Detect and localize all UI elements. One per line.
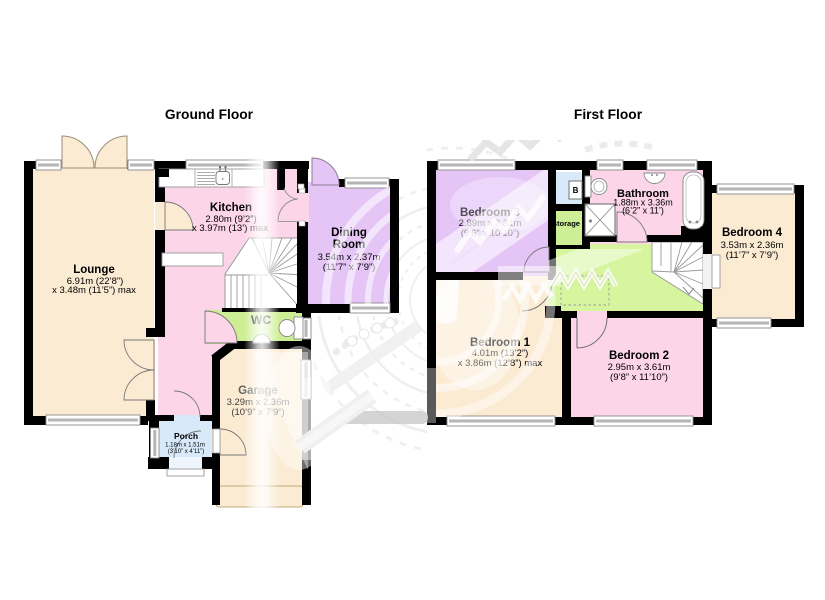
svg-text:Porch: Porch	[174, 431, 198, 441]
svg-text:(9’8” x 11’10”): (9’8” x 11’10”)	[610, 372, 668, 383]
svg-text:Storage: Storage	[552, 219, 580, 228]
svg-text:B: B	[573, 186, 579, 195]
svg-text:1.18m x 1.51m: 1.18m x 1.51m	[165, 443, 205, 449]
svg-text:Ground Floor: Ground Floor	[165, 107, 254, 122]
svg-text:Bedroom 2: Bedroom 2	[609, 350, 669, 362]
svg-text:Bedroom 4: Bedroom 4	[722, 227, 783, 239]
svg-text:(11’7” x 7’9”): (11’7” x 7’9”)	[726, 250, 779, 261]
svg-text:First Floor: First Floor	[574, 107, 643, 122]
svg-text:(6’2” x 11’): (6’2” x 11’)	[622, 206, 664, 216]
svg-text:x 3.48m (11’5”) max: x 3.48m (11’5”) max	[52, 285, 136, 296]
svg-text:Lounge: Lounge	[73, 264, 115, 276]
svg-text:(3’10” x 4’11”): (3’10” x 4’11”)	[168, 449, 205, 455]
